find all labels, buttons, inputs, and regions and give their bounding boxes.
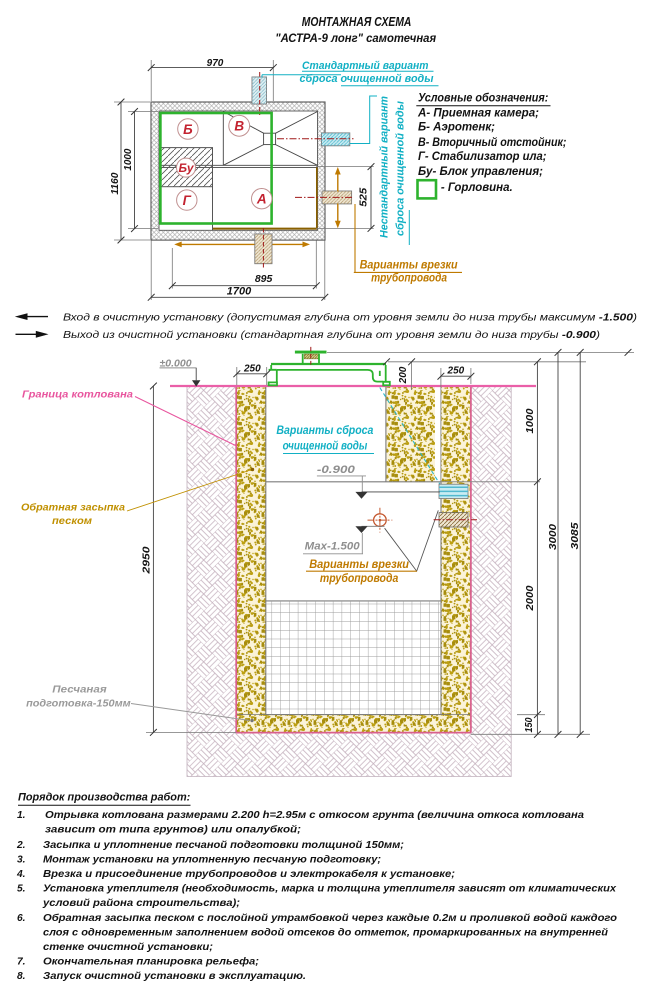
- svg-text:525: 525: [359, 187, 370, 206]
- svg-text:Окончательная планировка релье: Окончательная планировка рельефа;: [43, 956, 259, 968]
- svg-text:Условные обозначения:: Условные обозначения:: [418, 92, 549, 104]
- svg-text:Монтаж установки на уплотненну: Монтаж установки на уплотненную песчаную…: [43, 854, 381, 865]
- svg-text:1.: 1.: [17, 810, 26, 821]
- svg-text:А: А: [256, 192, 267, 207]
- svg-text:Варианты врезки: Варианты врезки: [360, 259, 458, 271]
- svg-text:А- Приемная камера;: А- Приемная камера;: [417, 108, 539, 120]
- svg-text:зависит от типа грунтов) или о: зависит от типа грунтов) или опалубкой;: [45, 824, 301, 836]
- svg-text:3085: 3085: [569, 522, 581, 549]
- svg-text:сброса очищенной воды: сброса очищенной воды: [395, 100, 407, 236]
- svg-text:250: 250: [447, 366, 465, 377]
- svg-text:150: 150: [523, 717, 535, 732]
- svg-text:200: 200: [398, 366, 409, 384]
- svg-text:Порядок производства работ:: Порядок производства работ:: [18, 791, 191, 803]
- svg-text:Граница котлована: Граница котлована: [22, 388, 133, 400]
- svg-text:Установка утеплителя (необходи: Установка утеплителя (необходимость, мар…: [43, 883, 617, 895]
- svg-text:-0.900: -0.900: [317, 464, 356, 476]
- svg-text:Выход из очистной установки (с: Выход из очистной установки (стандартная…: [63, 329, 600, 341]
- svg-text:Б- Аэротенк;: Б- Аэротенк;: [418, 122, 495, 134]
- svg-text:4.: 4.: [16, 869, 26, 880]
- svg-text:8.: 8.: [17, 971, 26, 982]
- svg-text:7.: 7.: [17, 957, 26, 968]
- svg-text:стенке очистной установки;: стенке очистной установки;: [43, 942, 213, 953]
- svg-text:2000: 2000: [524, 585, 536, 611]
- svg-text:подготовка-150мм: подготовка-150мм: [26, 697, 131, 709]
- svg-text:очищенной воды: очищенной воды: [283, 440, 368, 452]
- svg-text:Мах-1.500: Мах-1.500: [305, 541, 361, 553]
- svg-text:1000: 1000: [524, 408, 536, 433]
- svg-text:3000: 3000: [547, 524, 559, 550]
- svg-text:5.: 5.: [17, 884, 26, 895]
- svg-text:Варианты врезки: Варианты врезки: [309, 559, 409, 571]
- svg-text:Обратная засыпка: Обратная засыпка: [21, 501, 125, 513]
- svg-text:Врезка и присоединение трубопр: Врезка и присоединение трубопроводов и э…: [43, 868, 455, 880]
- svg-text:Б: Б: [183, 122, 193, 137]
- svg-text:Варианты сброса: Варианты сброса: [276, 425, 374, 437]
- svg-text:Вход в очистную установку (доп: Вход в очистную установку (допустимая гл…: [63, 311, 637, 323]
- svg-text:Запуск очистной установки в эк: Запуск очистной установки в эксплуатацию…: [43, 971, 306, 982]
- svg-text:песком: песком: [52, 515, 92, 527]
- svg-text:слоя с одновременным заполнени: слоя с одновременным заполнением водой о…: [43, 927, 609, 938]
- svg-text:1000: 1000: [123, 148, 134, 170]
- svg-text:- Горловина.: - Горловина.: [441, 182, 513, 194]
- svg-text:Г- Стабилизатор ила;: Г- Стабилизатор ила;: [418, 151, 547, 163]
- svg-text:Засыпка и уплотнение песчаной: Засыпка и уплотнение песчаной подготовки…: [43, 840, 404, 851]
- svg-text:В: В: [234, 119, 244, 134]
- svg-text:трубопровода: трубопровода: [371, 273, 448, 285]
- svg-text:2.: 2.: [16, 840, 26, 851]
- svg-text:250: 250: [243, 364, 261, 375]
- svg-text:Г: Г: [183, 193, 192, 208]
- svg-text:Стандартный вариант: Стандартный вариант: [302, 60, 429, 72]
- svg-text:Нестандартный вариант: Нестандартный вариант: [379, 96, 391, 238]
- svg-text:3.: 3.: [17, 854, 26, 865]
- svg-text:Бу- Блок управления;: Бу- Блок управления;: [418, 166, 543, 178]
- svg-text:1700: 1700: [227, 286, 252, 298]
- svg-text:Отрывка котлована размерами 2.: Отрывка котлована размерами 2.200 h=2.95…: [45, 810, 584, 821]
- svg-text:1160: 1160: [110, 172, 121, 194]
- svg-text:"АСТРА-9 лонг" самотечная: "АСТРА-9 лонг" самотечная: [275, 31, 436, 45]
- svg-text:6.: 6.: [17, 913, 26, 924]
- svg-text:МОНТАЖНАЯ СХЕМА: МОНТАЖНАЯ СХЕМА: [302, 15, 412, 29]
- svg-text:В- Вторичный отстойник;: В- Вторичный отстойник;: [418, 137, 567, 149]
- svg-text:трубопровода: трубопровода: [320, 573, 399, 585]
- svg-text:895: 895: [255, 273, 273, 285]
- svg-text:2950: 2950: [140, 546, 152, 574]
- svg-text:Обратная засыпка песком с посл: Обратная засыпка песком с послойной утра…: [43, 912, 617, 924]
- svg-text:Бу: Бу: [178, 161, 194, 175]
- svg-text:условий района строительства);: условий района строительства);: [42, 898, 240, 909]
- svg-text:970: 970: [207, 58, 224, 69]
- svg-text:Песчаная: Песчаная: [52, 683, 106, 695]
